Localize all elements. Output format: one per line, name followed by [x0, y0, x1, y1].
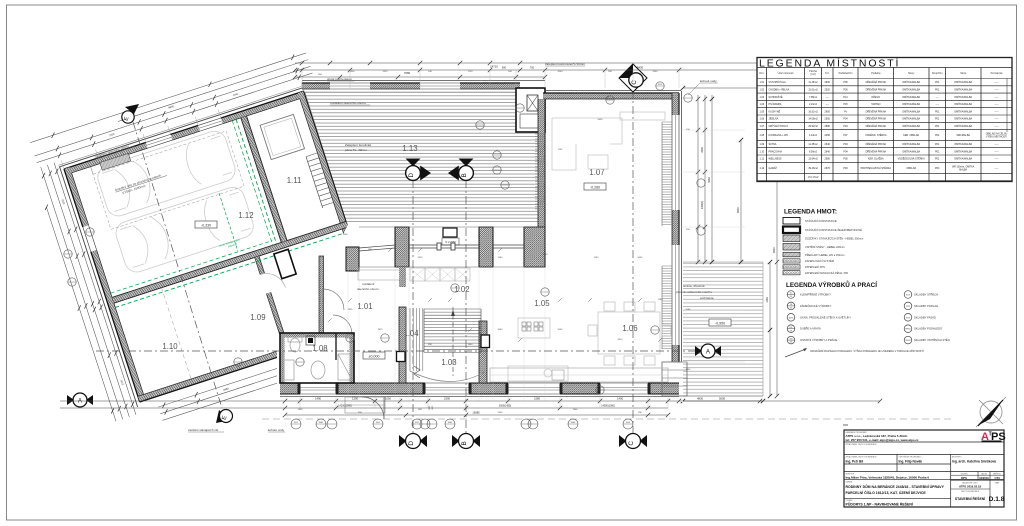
svg-text:OMÍTKA/MALBA: OMÍTKA/MALBA [902, 118, 920, 121]
svg-text:1280: 1280 [766, 297, 769, 303]
svg-text:ZPRACOVATEL ČÁSTI DOKUMENTACE: ZPRACOVATEL ČÁSTI DOKUMENTACE [846, 443, 878, 446]
svg-text:1.11: 1.11 [287, 176, 302, 185]
svg-text:1.04: 1.04 [759, 103, 764, 106]
svg-text:12.61m2: 12.61m2 [808, 89, 818, 92]
svg-text:2480(3): 2480(3) [701, 201, 704, 209]
svg-text:P04: P04 [843, 150, 848, 153]
svg-text:1300: 1300 [350, 71, 356, 73]
svg-text:Stěny: Stěny [908, 72, 915, 75]
svg-text:LEGENDA HMOT:: LEGENDA HMOT: [784, 209, 837, 216]
svg-text:1580: 1580 [343, 234, 349, 236]
svg-text:-----: ----- [995, 81, 999, 84]
svg-text:Ozn.: Ozn. [759, 72, 765, 75]
svg-text:kohout vody: kohout vody [700, 79, 717, 83]
svg-text:-----: ----- [995, 143, 999, 146]
svg-text:1490: 1490 [298, 409, 304, 411]
svg-text:Účel místnosti: Účel místnosti [778, 72, 794, 75]
svg-text:OMÍTKA/MALBA: OMÍTKA/MALBA [902, 110, 920, 113]
svg-text:rozdělení okenního otvoru: rozdělení okenního otvoru [330, 101, 366, 105]
svg-text:2300: 2300 [498, 412, 504, 414]
svg-text:WELLNESS: WELLNESS [769, 158, 782, 161]
svg-text:MALBA: MALBA [959, 168, 967, 171]
svg-text:1540: 1540 [498, 257, 504, 259]
svg-text:1.08: 1.08 [759, 134, 764, 137]
svg-text:P01: P01 [935, 150, 940, 153]
svg-text:1.05: 1.05 [534, 299, 550, 308]
svg-text:SDK/MALBA: SDK/MALBA [956, 134, 970, 137]
svg-text:2600: 2600 [825, 110, 831, 113]
svg-text:----: ---- [826, 96, 829, 99]
svg-text:P14: P14 [843, 96, 848, 99]
svg-text:1.11: 1.11 [760, 158, 765, 161]
svg-text:2580: 2580 [825, 158, 831, 161]
svg-text:OMÍTKA/MALBA: OMÍTKA/MALBA [954, 103, 972, 106]
svg-text:S.V.: S.V. [825, 72, 830, 75]
svg-text:GARÁŽ: GARÁŽ [769, 167, 778, 170]
svg-text:7680: 7680 [404, 71, 411, 75]
svg-text:SKLADBY PODLAH: SKLADBY PODLAH [914, 304, 938, 308]
svg-text:OMÍTKA/MALBA: OMÍTKA/MALBA [954, 110, 972, 113]
svg-text:2360: 2360 [543, 254, 549, 256]
svg-text:1130: 1130 [558, 149, 563, 151]
svg-text:P15: P15 [843, 103, 848, 106]
svg-text:1440: 1440 [468, 344, 474, 346]
svg-text:tel: 257 950 531, e-mail: atps: tel: 257 950 531, e-mail: atps@atps.cz, … [846, 438, 920, 442]
svg-text:B: B [461, 441, 468, 445]
svg-text:2450: 2450 [825, 134, 831, 137]
svg-text:16085: 16085 [472, 411, 480, 415]
svg-text:2880: 2880 [825, 125, 831, 128]
svg-text:1130: 1130 [594, 257, 599, 259]
svg-text:3000(1425): 3000(1425) [499, 405, 511, 408]
svg-text:STAVBA: STAVBA [846, 481, 853, 484]
svg-text:5030: 5030 [638, 257, 644, 259]
svg-text:OMÍTKA/MALBA: OMÍTKA/MALBA [902, 81, 920, 84]
svg-text:P01: P01 [935, 143, 940, 146]
svg-text:2.21m2: 2.21m2 [809, 103, 818, 106]
svg-text:29.92m2: 29.92m2 [808, 125, 818, 128]
svg-text:2640: 2640 [825, 143, 831, 146]
svg-text:STX: STX [906, 295, 911, 297]
svg-text:kohout vody: kohout vody [268, 428, 285, 432]
svg-text:C: C [628, 441, 635, 446]
svg-text:5630: 5630 [598, 119, 604, 121]
svg-text:P07: P07 [843, 134, 848, 137]
svg-text:MĚŘÍTKO: MĚŘÍTKO [993, 472, 1001, 475]
svg-text:Poznámka: Poznámka [991, 72, 1003, 75]
svg-text:ČÁST DOKUMENTACE: ČÁST DOKUMENTACE [961, 490, 980, 493]
svg-text:OMÍTKA/MALBA: OMÍTKA/MALBA [902, 89, 920, 92]
svg-text:[m2]: [m2] [811, 73, 816, 76]
svg-text:JÍDELNA: JÍDELNA [769, 118, 779, 121]
svg-text:2520: 2520 [825, 89, 831, 92]
svg-text:SKLADBY FASÁD: SKLADBY FASÁD [914, 315, 936, 319]
svg-text:OMÍTKA/MALBA: OMÍTKA/MALBA [954, 81, 972, 84]
svg-text:CHODBA + RELAX: CHODBA + RELAX [769, 89, 790, 92]
svg-text:1.06: 1.06 [622, 324, 637, 333]
svg-text:PŮDORYS 1.NP - NAVRHOVANÉ ŘEŠE: PŮDORYS 1.NP - NAVRHOVANÉ ŘEŠENÍ [846, 502, 914, 507]
svg-text:P05: P05 [843, 158, 848, 161]
svg-text:1.06: 1.06 [759, 118, 764, 121]
svg-text:DŘEVĚNÁ PRKNA: DŘEVĚNÁ PRKNA [866, 143, 887, 146]
svg-text:2040: 2040 [498, 329, 504, 331]
svg-text:2040: 2040 [558, 71, 564, 73]
svg-text:OMÍTKA/MALBA: OMÍTKA/MALBA [902, 150, 920, 153]
svg-text:Ing.Milan Pitra, Veltruská 182: Ing.Milan Pitra, Veltruská 1828/45, Dejv… [846, 475, 930, 479]
svg-text:DPS: DPS [961, 476, 967, 480]
svg-text:P04: P04 [843, 125, 848, 128]
svg-text:1.01: 1.01 [357, 302, 372, 311]
svg-text:pěna TL. 40mm: pěna TL. 40mm [345, 148, 367, 152]
svg-text:P03: P03 [843, 167, 848, 170]
svg-text:13.64m2: 13.64m2 [808, 158, 818, 161]
svg-text:W02: W02 [448, 422, 453, 424]
svg-text:SCHODIŠTĚ: SCHODIŠTĚ [769, 96, 783, 99]
svg-text:VSTUPNÍ HALA: VSTUPNÍ HALA [769, 81, 787, 84]
svg-text:WXX: WXX [789, 317, 794, 319]
svg-text:zateplení komína EPS 50mm: zateplení komína EPS 50mm [545, 62, 585, 66]
svg-text:1200: 1200 [352, 397, 358, 401]
svg-text:----: ---- [826, 103, 829, 106]
svg-text:KUCHYNĚ: KUCHYNĚ [769, 110, 781, 113]
svg-text:PodlahaOzn: PodlahaOzn [839, 72, 853, 75]
svg-text:2080: 2080 [686, 309, 692, 311]
svg-text:OMÍTKA/MALBA: OMÍTKA/MALBA [902, 125, 920, 128]
svg-text:2655: 2655 [348, 309, 354, 311]
svg-text:PXX: PXX [906, 306, 911, 308]
svg-text:2300: 2300 [444, 397, 450, 401]
svg-text:KOUPELNA + WC: KOUPELNA + WC [769, 134, 789, 137]
svg-text:8410: 8410 [772, 247, 776, 253]
svg-text:OMÍTKA/MALBA: OMÍTKA/MALBA [954, 150, 972, 153]
svg-text:1180: 1180 [658, 299, 663, 301]
svg-text:P03: P03 [935, 167, 940, 170]
svg-text:DŘEVĚNÁ PRKNA: DŘEVĚNÁ PRKNA [866, 81, 887, 84]
svg-text:1.09: 1.09 [759, 143, 764, 146]
svg-text:-0,950: -0,950 [715, 322, 725, 326]
svg-text:STAVEBNÍ ŘEŠENÍ: STAVEBNÍ ŘEŠENÍ [955, 496, 986, 501]
svg-text:1400: 1400 [617, 397, 623, 401]
svg-text:Strop: Strop [960, 72, 967, 75]
svg-text:2420: 2420 [418, 257, 424, 259]
svg-text:11.46m2: 11.46m2 [808, 81, 818, 84]
svg-text:16.51m2: 16.51m2 [808, 110, 818, 113]
svg-text:OBKLAD: OBKLAD [906, 167, 916, 170]
svg-text:DŘEVĚNÁ PRKNA: DŘEVĚNÁ PRKNA [866, 150, 887, 153]
svg-text:TARTAN: TARTAN [871, 103, 880, 106]
svg-text:8.59m2: 8.59m2 [809, 150, 818, 153]
svg-text:39.46m2: 39.46m2 [808, 167, 818, 170]
svg-text:P02: P02 [935, 134, 940, 137]
svg-text:PRACOVNA: PRACOVNA [769, 150, 783, 153]
svg-text:900: 900 [502, 67, 507, 70]
svg-text:DŘEVĚNÁ PRKNA: DŘEVĚNÁ PRKNA [866, 110, 887, 113]
svg-text:STÁVAJÍCÍ KONSTRUKCE: STÁVAJÍCÍ KONSTRUKCE [805, 219, 837, 223]
svg-text:5280: 5280 [708, 177, 711, 183]
svg-text:ZPRACOVATEL ČÁSTI DOKUMENTACE: ZPRACOVATEL ČÁSTI DOKUMENTACE [846, 456, 878, 459]
svg-text:1.07: 1.07 [759, 125, 764, 128]
svg-text:C: C [631, 80, 638, 85]
svg-text:OMÍTKA/MALBA: OMÍTKA/MALBA [902, 96, 920, 99]
svg-text:přesná velikost dle návrhu: přesná velikost dle návrhu [676, 290, 712, 294]
svg-text:P06: P06 [843, 81, 848, 84]
svg-text:okenního otvoru: okenního otvoru [357, 287, 379, 291]
svg-text:2620: 2620 [383, 71, 389, 73]
svg-text:-0,330: -0,330 [201, 224, 211, 228]
svg-text:ATPS 2019.02.18: ATPS 2019.02.18 [959, 484, 981, 488]
svg-text:P04: P04 [843, 143, 848, 146]
svg-text:OSTATNÍ VÝROBKY A PRÁCE: OSTATNÍ VÝROBKY A PRÁCE [800, 338, 837, 342]
svg-text:VODĚOD. STĚRKA: VODĚOD. STĚRKA [865, 134, 887, 137]
svg-text:1490: 1490 [315, 397, 321, 401]
svg-text:1.10: 1.10 [759, 150, 764, 153]
svg-text:architekta: architekta [700, 296, 714, 300]
svg-text:Ing. arch. Kateřina Smrčková: Ing. arch. Kateřina Smrčková [952, 460, 996, 464]
svg-text:Zateplení fenolická: Zateplení fenolická [345, 143, 371, 147]
svg-text:2045: 2045 [558, 329, 564, 331]
svg-text:2060: 2060 [653, 71, 659, 73]
svg-text:1.13: 1.13 [402, 144, 417, 153]
svg-text:P01: P01 [935, 125, 940, 128]
svg-text:-----: ----- [995, 103, 999, 106]
svg-text:OMÍTKA/MALBA: OMÍTKA/MALBA [954, 125, 972, 128]
svg-text:PSÍ RAMPA: PSÍ RAMPA [769, 103, 782, 106]
svg-text:1.03: 1.03 [441, 358, 456, 367]
svg-text:P01: P01 [935, 81, 940, 84]
svg-text:DŘEVO: DŘEVO [872, 96, 881, 99]
svg-text:1.02: 1.02 [454, 285, 469, 294]
svg-text:14050(1050): 14050(1050) [601, 405, 615, 408]
svg-text:2600: 2600 [825, 81, 831, 84]
svg-text:8410: 8410 [736, 207, 740, 213]
svg-text:zazdění stávajících nik: zazdění stávajících nik [188, 428, 219, 432]
svg-text:SVXX: SVXX [905, 340, 911, 342]
svg-text:OMÍTKA/MALBA: OMÍTKA/MALBA [954, 96, 972, 99]
svg-text:P01: P01 [935, 110, 940, 113]
svg-text:PARCELNÍ ČÍSLO 1612/13, KAT. Ú: PARCELNÍ ČÍSLO 1612/13, KAT. ÚZEMÍ DEJVI… [846, 490, 927, 495]
svg-text:W03: W03 [571, 422, 576, 424]
svg-text:14710: 14710 [490, 65, 498, 69]
svg-text:StropOzn: StropOzn [932, 72, 943, 75]
svg-text:-----: ----- [995, 167, 999, 170]
svg-text:ŠATNA: ŠATNA [769, 143, 777, 146]
svg-text:OMÍTKA/MALBA: OMÍTKA/MALBA [954, 89, 972, 92]
svg-text:FXX: FXX [906, 317, 911, 319]
svg-text:172.17m2: 172.17m2 [808, 176, 819, 179]
svg-text:-----: ----- [995, 110, 999, 113]
svg-text:-----: ----- [995, 150, 999, 153]
svg-text:OMÍTKA/MALBA: OMÍTKA/MALBA [954, 158, 972, 161]
svg-text:11.35m2: 11.35m2 [808, 143, 818, 146]
svg-text:P01: P01 [935, 89, 940, 92]
svg-text:1.03: 1.03 [759, 96, 764, 99]
svg-text:1580: 1580 [534, 397, 540, 401]
svg-text:1.10: 1.10 [162, 342, 178, 351]
svg-text:OBKLAD NA CELOU: OBKLAD NA CELOU [986, 133, 1008, 136]
svg-text:VÝŠKU MÍSTNOSTI: VÝŠKU MÍSTNOSTI [986, 136, 1007, 139]
svg-text:-----: ----- [995, 96, 999, 99]
svg-text:----: ---- [936, 96, 939, 99]
svg-text:1.09: 1.09 [250, 313, 265, 322]
svg-text:1:50: 1:50 [994, 476, 1000, 480]
svg-text:-0,280: -0,280 [590, 186, 600, 190]
svg-text:P01: P01 [935, 158, 940, 161]
svg-text:DŘEVĚNÁ PRKNA: DŘEVĚNÁ PRKNA [866, 125, 887, 128]
svg-text:OMÍTKA/MALBA: OMÍTKA/MALBA [954, 118, 972, 121]
svg-text:WR 100mm, OMÍTKA: WR 100mm, OMÍTKA [952, 166, 975, 169]
svg-text:2640: 2640 [825, 150, 831, 153]
svg-text:STUPEŇ: STUPEŇ [961, 472, 969, 475]
svg-text:-----: ----- [995, 89, 999, 92]
svg-text:5430: 5430 [637, 66, 644, 70]
svg-text:W01: W01 [319, 422, 324, 424]
svg-text:-----: ----- [995, 158, 999, 161]
svg-text:Ing. Filip Novák: Ing. Filip Novák [899, 460, 923, 464]
svg-text:1.12: 1.12 [759, 167, 764, 170]
svg-text:PHXX: PHXX [905, 329, 911, 331]
svg-text:1.01: 1.01 [759, 81, 764, 84]
svg-text:14200(1000): 14200(1000) [338, 405, 352, 408]
svg-text:OMÍTKA/MALBA: OMÍTKA/MALBA [954, 143, 972, 146]
svg-text:RODINNÝ DŮM NA BERÁNCE 2448/18: RODINNÝ DŮM NA BERÁNCE 2448/18 - STAVEBN… [846, 484, 945, 489]
svg-text:1050: 1050 [385, 397, 391, 401]
svg-text:Ing. Petr Bíl: Ing. Petr Bíl [846, 460, 864, 464]
svg-text:4510: 4510 [618, 339, 624, 341]
svg-text:1700: 1700 [468, 71, 474, 73]
svg-text:1875: 1875 [378, 329, 384, 331]
svg-text:D: D [408, 173, 415, 178]
svg-text:KER. DLAŽBA: KER. DLAŽBA [868, 158, 884, 161]
svg-text:DŘEVĚNÁ PRKNA: DŘEVĚNÁ PRKNA [866, 118, 887, 121]
svg-text:±0,000: ±0,000 [369, 355, 380, 359]
svg-text:1350: 1350 [686, 369, 692, 371]
svg-text:2670: 2670 [825, 167, 831, 170]
svg-text:1.02: 1.02 [759, 89, 764, 92]
svg-text:2600: 2600 [825, 118, 831, 121]
svg-text:P01: P01 [935, 118, 940, 121]
svg-text:3000: 3000 [719, 397, 726, 401]
svg-text:D.1.8: D.1.8 [989, 496, 1005, 503]
svg-text:-----: ----- [995, 125, 999, 128]
svg-text:DATUM: DATUM [981, 472, 987, 475]
svg-text:terasa, dřevěná: terasa, dřevěná [683, 284, 705, 288]
svg-text:rozdělení: rozdělení [362, 282, 375, 286]
svg-text:VODĚODOLNÁ STĚRKA: VODĚODOLNÁ STĚRKA [898, 158, 926, 161]
svg-text:Podlaha: Podlaha [871, 72, 881, 75]
svg-text:KER. OBKLAD: KER. OBKLAD [903, 134, 919, 137]
svg-text:PROTISKLUZOVÁ STĚRKA: PROTISKLUZOVÁ STĚRKA [861, 167, 892, 170]
svg-text:ARCHITEKT: ARCHITEKT [952, 456, 962, 459]
svg-text:700: 700 [530, 67, 535, 70]
svg-text:1.08: 1.08 [312, 344, 327, 353]
svg-text:OMÍTKA/MALBA: OMÍTKA/MALBA [902, 143, 920, 146]
svg-text:OBÝVACÍ POKOJ: OBÝVACÍ POKOJ [769, 125, 789, 128]
svg-text:vpust pod terasou: vpust pod terasou [327, 77, 352, 81]
svg-text:ODPOVĚDNÝ PROJEKTANT: ODPOVĚDNÝ PROJEKTANT [899, 456, 921, 459]
svg-text:D: D [408, 441, 415, 446]
svg-text:1.12: 1.12 [238, 211, 253, 220]
svg-text:2500: 2500 [701, 147, 704, 153]
svg-text:B: B [461, 173, 468, 177]
svg-text:DŘEVĚNÁ PRKNA: DŘEVĚNÁ PRKNA [866, 89, 887, 92]
svg-text:P04: P04 [843, 118, 848, 121]
svg-text:14.08m2: 14.08m2 [808, 118, 818, 121]
svg-text:1.05: 1.05 [759, 110, 764, 113]
svg-text:OMÍTKA/MALBA: OMÍTKA/MALBA [902, 103, 920, 106]
svg-text:-----: ----- [995, 118, 999, 121]
svg-text:4.44m2: 4.44m2 [809, 134, 818, 137]
svg-text:4830: 4830 [697, 397, 703, 401]
svg-text:----: ---- [936, 103, 939, 106]
svg-text:P06: P06 [843, 89, 848, 92]
svg-text:04/2019: 04/2019 [979, 476, 989, 480]
svg-text:7.85m2: 7.85m2 [809, 96, 818, 99]
svg-text:1400: 1400 [573, 409, 579, 411]
svg-text:ZATEPLENÍ XPS: ZATEPLENÍ XPS [805, 265, 825, 269]
